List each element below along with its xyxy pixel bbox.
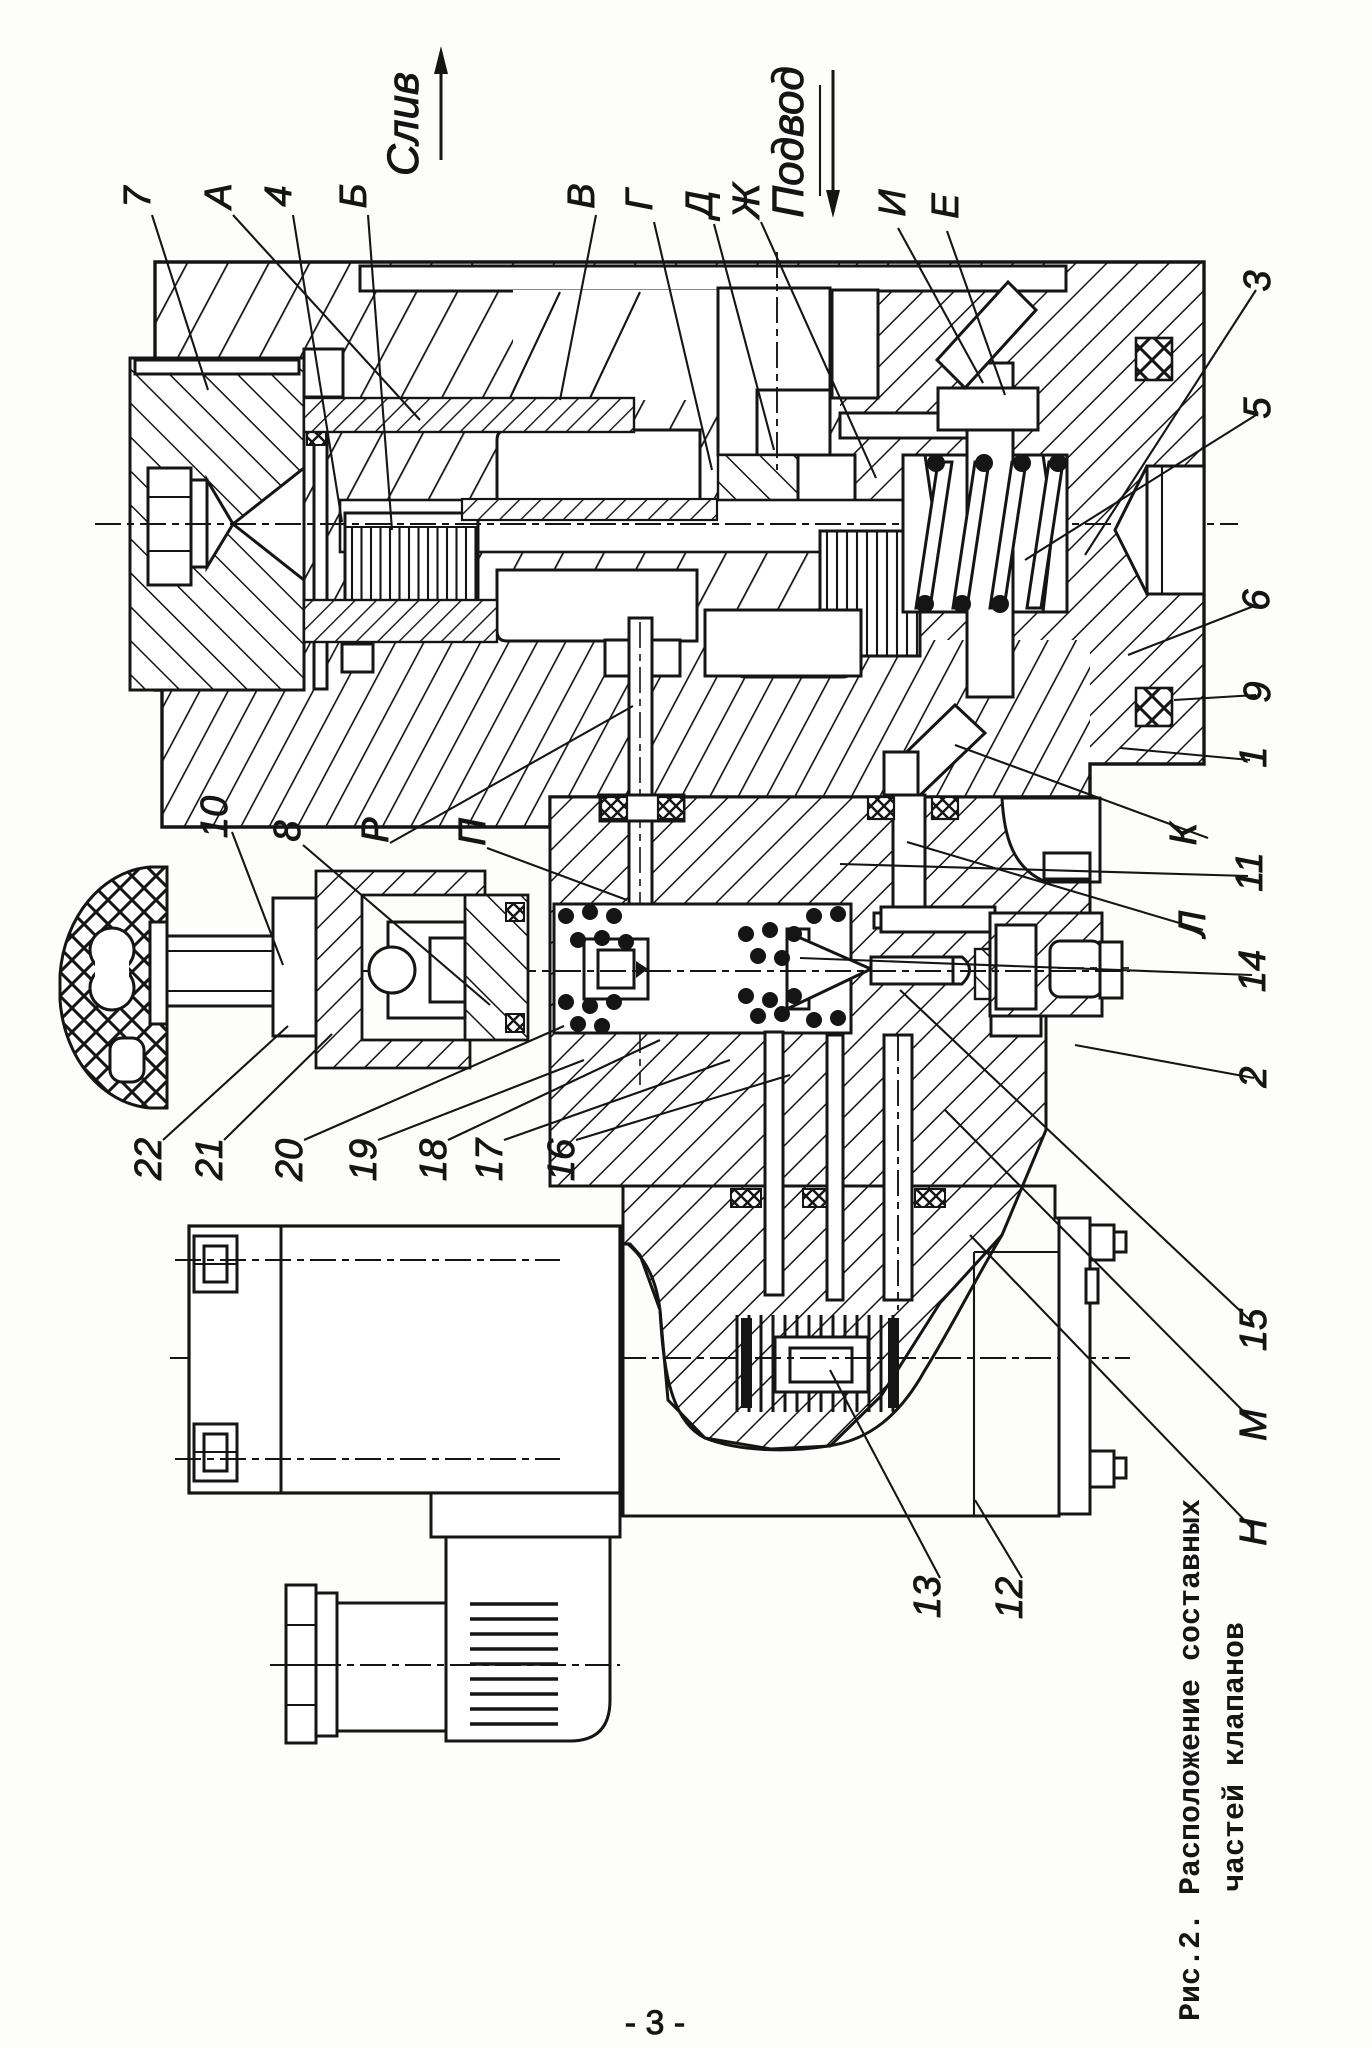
svg-text:6: 6: [1236, 589, 1278, 611]
svg-text:Ж: Ж: [726, 181, 768, 220]
svg-text:10: 10: [194, 796, 236, 838]
svg-text:М: М: [1233, 1409, 1275, 1441]
svg-text:18: 18: [413, 1139, 455, 1181]
svg-text:частей клапанов: частей клапанов: [1219, 1622, 1253, 1892]
svg-text:Е: Е: [925, 193, 967, 219]
svg-text:7: 7: [117, 185, 159, 208]
svg-text:И: И: [872, 189, 914, 217]
svg-text:13: 13: [907, 1576, 949, 1618]
svg-text:20: 20: [269, 1139, 311, 1182]
svg-text:1: 1: [1233, 746, 1275, 767]
svg-text:14: 14: [1232, 950, 1274, 992]
svg-text:12: 12: [989, 1577, 1031, 1619]
svg-text:11: 11: [1229, 852, 1271, 891]
svg-text:Рис.2. Расположение составных: Рис.2. Расположение составных: [1175, 1499, 1209, 2021]
svg-text:Подвод: Подвод: [764, 66, 813, 217]
svg-text:22: 22: [128, 1138, 170, 1181]
svg-text:А: А: [198, 183, 240, 210]
svg-text:19: 19: [343, 1139, 385, 1181]
svg-text:3: 3: [1237, 270, 1279, 291]
svg-text:Р: Р: [355, 817, 397, 843]
svg-text:2: 2: [1233, 1066, 1275, 1088]
svg-text:- 3 -: - 3 -: [625, 2004, 685, 2042]
svg-text:9: 9: [1237, 681, 1279, 702]
svg-text:К: К: [1163, 820, 1205, 845]
svg-text:8: 8: [267, 820, 309, 841]
svg-text:16: 16: [541, 1138, 583, 1181]
svg-text:Л: Л: [1172, 910, 1214, 940]
svg-text:Д: Д: [679, 191, 721, 222]
svg-text:5: 5: [1237, 397, 1279, 419]
svg-text:4: 4: [258, 185, 300, 206]
svg-text:Б: Б: [333, 184, 375, 209]
svg-text:Г: Г: [619, 186, 661, 210]
svg-text:15: 15: [1233, 1308, 1275, 1351]
svg-text:17: 17: [469, 1137, 511, 1181]
svg-text:Слив: Слив: [379, 72, 428, 176]
svg-text:21: 21: [189, 1138, 231, 1181]
svg-text:П: П: [452, 818, 494, 846]
svg-text:Н: Н: [1233, 1518, 1275, 1546]
svg-text:В: В: [561, 183, 603, 208]
